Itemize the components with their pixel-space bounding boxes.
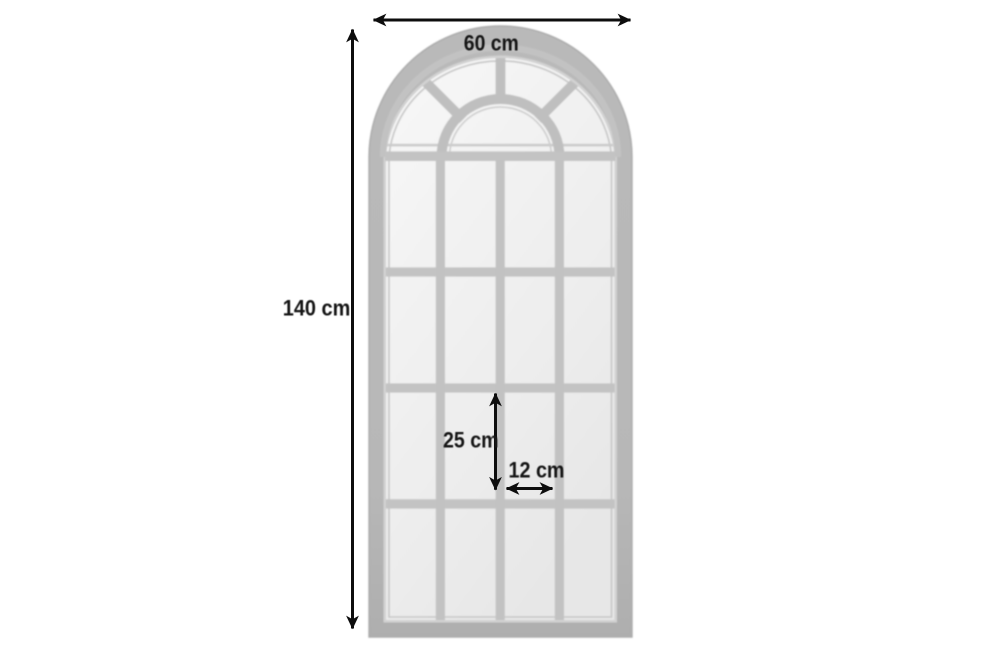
svg-text:25 cm: 25 cm <box>443 428 499 453</box>
svg-text:12 cm: 12 cm <box>509 458 565 483</box>
svg-text:60 cm: 60 cm <box>464 31 519 56</box>
svg-text:140 cm: 140 cm <box>283 296 351 321</box>
